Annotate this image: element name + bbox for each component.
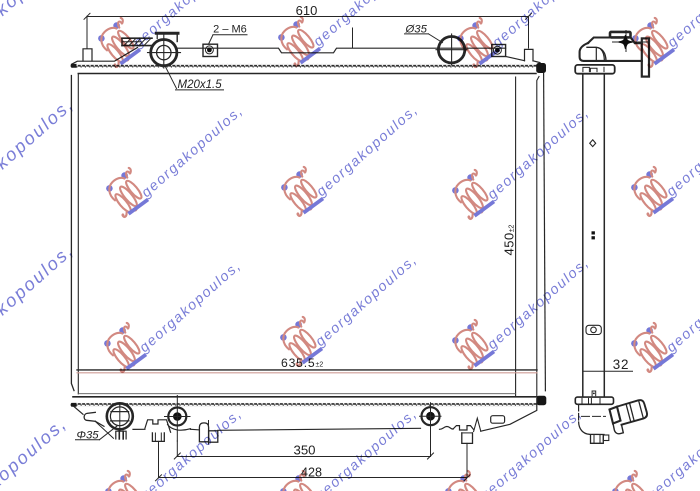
- svg-text:635.5±2: 635.5±2: [281, 356, 323, 370]
- svg-text:2 – M6: 2 – M6: [213, 24, 247, 36]
- svg-text:350: 350: [293, 443, 315, 458]
- svg-text:32: 32: [613, 357, 630, 372]
- svg-text:450±2: 450±2: [502, 224, 517, 255]
- svg-text:610: 610: [296, 3, 318, 18]
- svg-text:M20x1.5: M20x1.5: [178, 79, 223, 91]
